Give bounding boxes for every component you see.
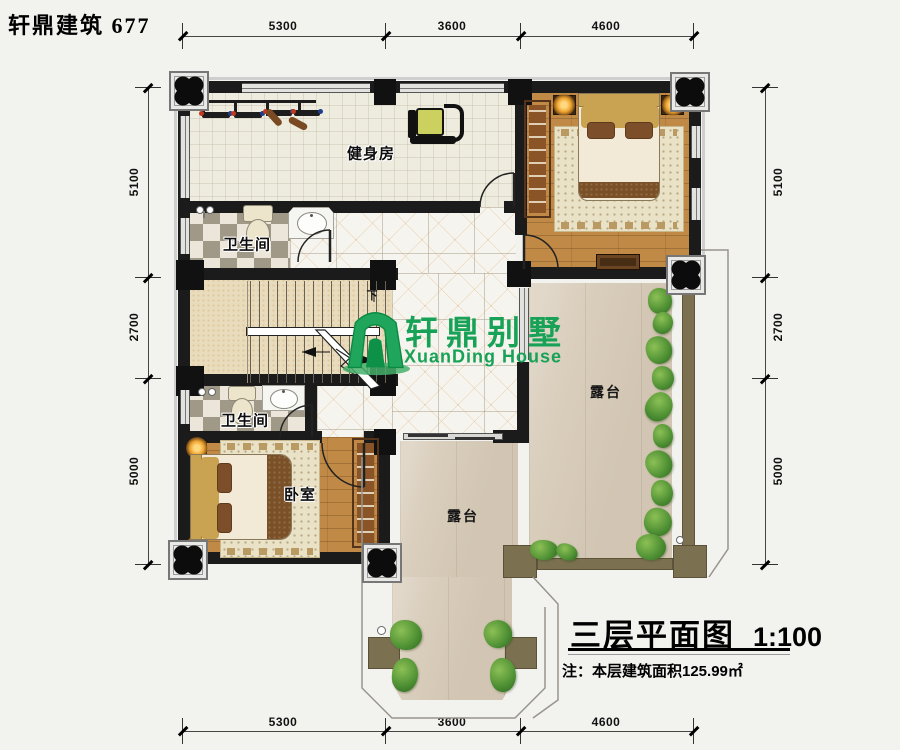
- door-arc-gym: [480, 173, 514, 207]
- area-note: 注：本层建筑面积125.99㎡: [562, 660, 743, 681]
- room-label-gym: 健身房: [347, 143, 395, 164]
- title-underline-thin: [568, 654, 790, 655]
- door-arc-bath2: [280, 405, 312, 437]
- logo-arch-icon: [340, 300, 410, 376]
- logo-text-en: XuanDing House: [404, 347, 562, 368]
- door-arc-bath1: [298, 230, 330, 262]
- door-arc-bedroom2: [322, 443, 364, 487]
- door-arc-bedroom1: [524, 235, 558, 269]
- room-label-terrace-right: 露台: [590, 382, 622, 402]
- room-label-terrace-bottom: 露台: [447, 506, 479, 526]
- room-label-bath2: 卫生间: [221, 410, 269, 431]
- title-underline: [568, 648, 790, 651]
- room-label-bath1: 卫生间: [223, 234, 271, 255]
- room-label-bedroom: 卧室: [284, 484, 316, 505]
